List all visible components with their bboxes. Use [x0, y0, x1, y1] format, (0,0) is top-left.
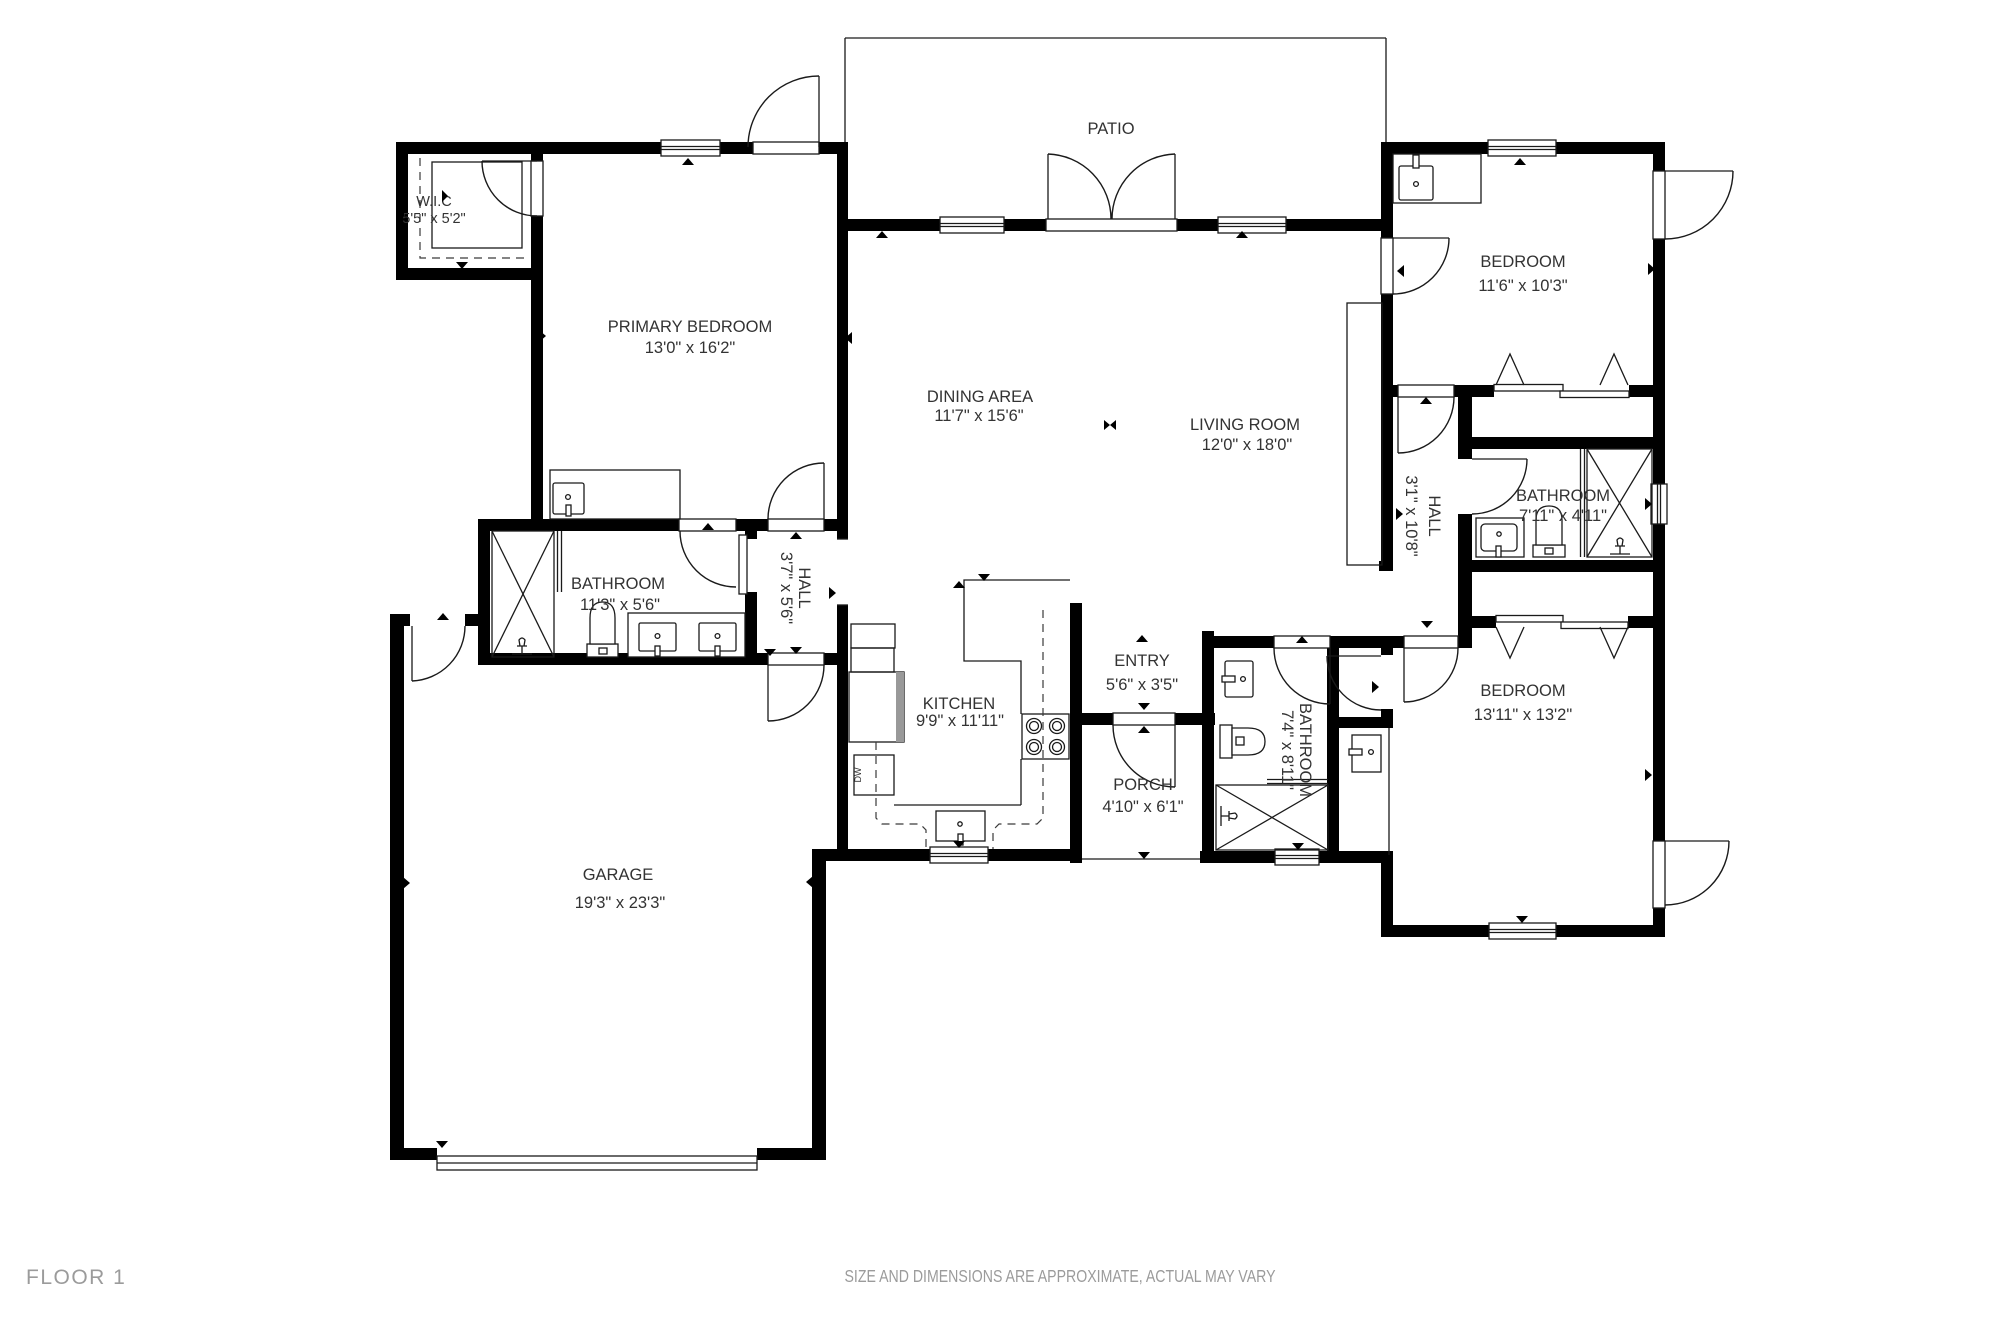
svg-text:13'0" x 16'2": 13'0" x 16'2" [645, 339, 736, 357]
svg-text:7'4" x 8'11": 7'4" x 8'11" [1278, 710, 1296, 790]
svg-text:ENTRY: ENTRY [1114, 652, 1170, 670]
svg-text:13'11" x 13'2": 13'11" x 13'2" [1474, 706, 1573, 724]
svg-text:BATHROOM: BATHROOM [1516, 487, 1610, 505]
svg-text:GARAGE: GARAGE [583, 866, 654, 884]
svg-text:PRIMARY BEDROOM: PRIMARY BEDROOM [608, 318, 772, 336]
svg-text:9'9" x 11'11": 9'9" x 11'11" [916, 712, 1004, 730]
svg-text:5'5" x 5'2": 5'5" x 5'2" [402, 211, 465, 227]
svg-text:11'3" x 5'6": 11'3" x 5'6" [580, 596, 660, 614]
svg-text:HALL: HALL [795, 567, 813, 608]
svg-text:5'6" x 3'5": 5'6" x 3'5" [1106, 676, 1178, 694]
svg-text:BEDROOM: BEDROOM [1480, 682, 1565, 700]
svg-text:BATHROOM: BATHROOM [1296, 703, 1314, 797]
svg-text:KITCHEN: KITCHEN [923, 695, 995, 713]
svg-text:3'7" x 5'6": 3'7" x 5'6" [777, 552, 795, 624]
svg-text:FLOOR 1: FLOOR 1 [26, 1266, 126, 1289]
svg-text:BEDROOM: BEDROOM [1480, 253, 1565, 271]
svg-text:LIVING ROOM: LIVING ROOM [1190, 416, 1300, 434]
svg-text:3'1" x 10'8": 3'1" x 10'8" [1402, 475, 1420, 556]
svg-text:11'6" x 10'3": 11'6" x 10'3" [1478, 277, 1567, 295]
svg-text:DW: DW [853, 767, 863, 782]
svg-text:DINING AREA: DINING AREA [927, 388, 1033, 406]
svg-text:HALL: HALL [1425, 495, 1443, 536]
svg-text:PATIO: PATIO [1087, 120, 1134, 138]
svg-text:19'3" x 23'3": 19'3" x 23'3" [575, 894, 666, 912]
svg-text:PORCH: PORCH [1113, 776, 1173, 794]
svg-text:12'0" x 18'0": 12'0" x 18'0" [1202, 436, 1293, 454]
svg-text:7'11" x 4'11": 7'11" x 4'11" [1519, 507, 1607, 525]
svg-text:11'7" x 15'6": 11'7" x 15'6" [934, 407, 1023, 425]
svg-text:BATHROOM: BATHROOM [571, 575, 665, 593]
svg-text:SIZE AND DIMENSIONS ARE APPROX: SIZE AND DIMENSIONS ARE APPROXIMATE, ACT… [845, 1266, 1276, 1286]
svg-text:4'10" x 6'1": 4'10" x 6'1" [1102, 798, 1183, 816]
